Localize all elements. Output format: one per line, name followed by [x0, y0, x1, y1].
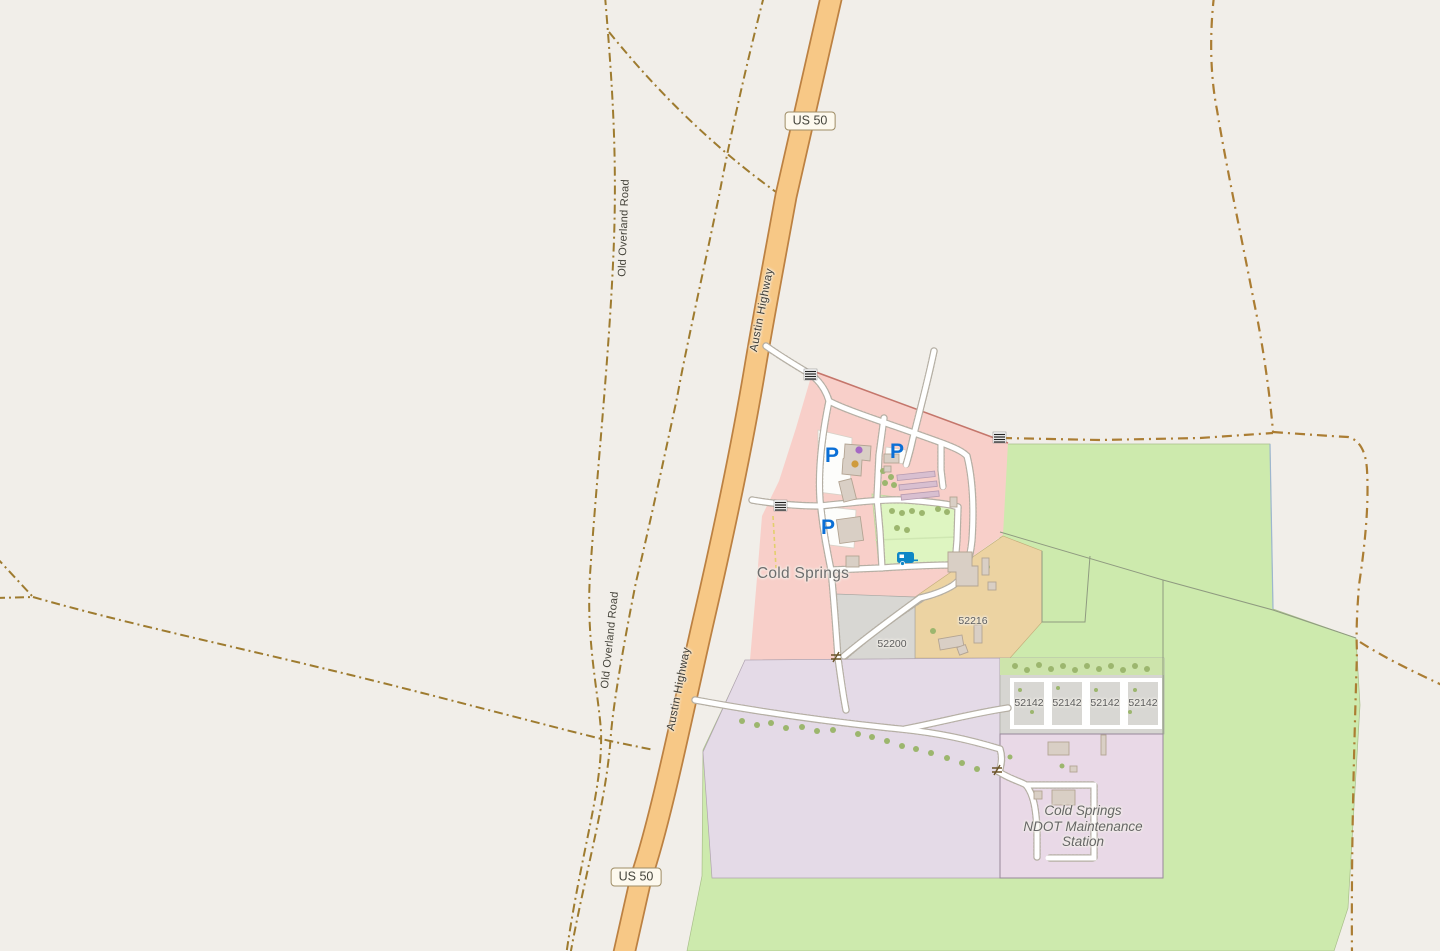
plots-52142 [1012, 680, 1160, 727]
storage-buildings [897, 471, 939, 501]
map-canvas[interactable]: US 50 US 50 Austin Highway Austin Highwa… [0, 0, 1440, 951]
tree-strip [1000, 658, 1164, 675]
industrial-area [703, 658, 1000, 878]
poi-dot-orange [851, 460, 858, 467]
poi-dot-purple [855, 446, 862, 453]
map-render-layer [0, 0, 1440, 951]
route-shield-south: US 50 [611, 868, 662, 887]
route-shield-north: US 50 [785, 112, 836, 131]
